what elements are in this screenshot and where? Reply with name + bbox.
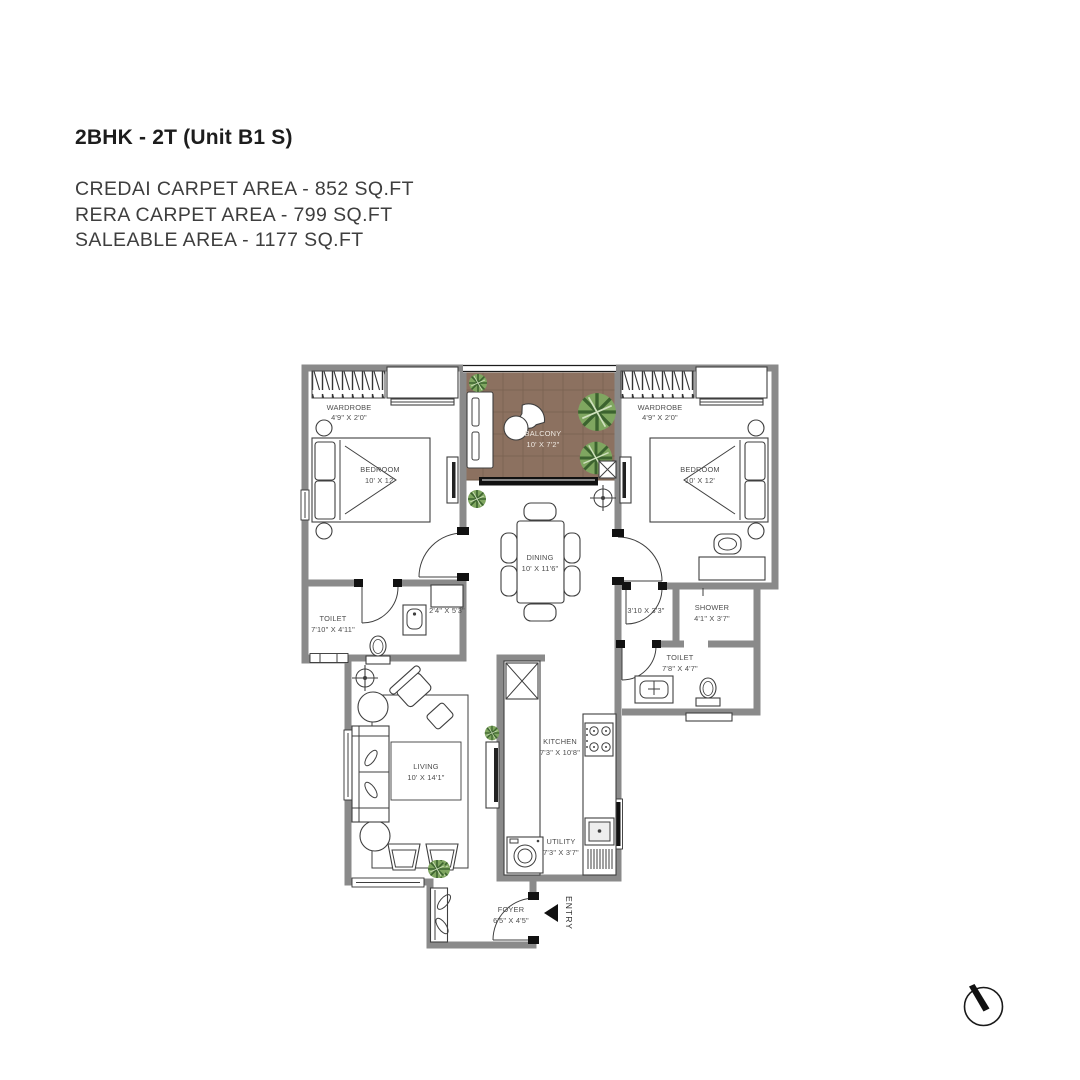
toilet-1-door (354, 579, 402, 623)
toilet-1-label: TOILET (320, 614, 347, 623)
plant-icon (578, 393, 616, 431)
bedside-table (316, 420, 332, 436)
tv-unit (486, 742, 499, 808)
hob (585, 723, 613, 756)
toilet-2-label: TOILET (667, 653, 694, 662)
toilet-2-door (616, 640, 661, 680)
balcony-bench (467, 392, 493, 468)
shaft-box (599, 461, 616, 478)
fridge (506, 663, 538, 699)
basin (635, 676, 673, 703)
plant-icon (468, 490, 486, 508)
bedroom-1-dims: 10' X 12' (365, 476, 395, 485)
passage-1-dims: 2'4" X 5'3" (429, 606, 465, 615)
bedside-table (748, 420, 764, 436)
side-table (360, 821, 390, 851)
shower-label: SHOWER (695, 603, 729, 612)
bedroom-2: WARDROBE 4'9" X 2'0" BEDROOM 10' X 12' (612, 367, 768, 585)
desk (699, 534, 765, 580)
dining-table (517, 521, 564, 603)
toilet-1-dims: 7'10" X 4'11" (311, 625, 355, 634)
toilet-2-dims: 7'8" X 4'7" (662, 664, 698, 673)
bedroom-2-dims: 10' X 12' (685, 476, 715, 485)
shower-dims: 4'1" X 3'7" (694, 614, 730, 623)
kitchen-label: KITCHEN (543, 737, 577, 746)
wardrobe-2-label: WARDROBE (638, 403, 683, 412)
living: LIVING 10' X 14'1" (352, 665, 499, 878)
bedroom-1-door (419, 527, 469, 581)
wc-icon (366, 636, 390, 664)
bedroom-2-door (612, 529, 662, 585)
compass (965, 984, 1003, 1026)
balcony-label: BALCONY (525, 429, 562, 438)
plant-icon (428, 860, 446, 878)
passage-2-dims: 3'10 X 3'3" (627, 606, 664, 615)
bedside-table (316, 523, 332, 539)
balcony-railing (463, 364, 616, 373)
wc-icon (696, 678, 720, 706)
dining-label: DINING (526, 553, 553, 562)
living-label: LIVING (413, 762, 438, 771)
ottoman (426, 702, 454, 730)
wardrobe-2-dims: 4'9" X 2'0" (642, 413, 678, 422)
entry-arrow-icon (544, 904, 558, 922)
bedroom-1-label: BEDROOM (360, 465, 400, 474)
page: 2BHK - 2T (Unit B1 S) CREDAI CARPET AREA… (0, 0, 1080, 1080)
dining: DINING 10' X 11'6" (468, 485, 616, 621)
living-dims: 10' X 14'1" (407, 773, 444, 782)
dresser-1 (387, 367, 458, 405)
bedroom-2-label: BEDROOM (680, 465, 720, 474)
entry-label: ENTRY (564, 896, 574, 930)
bedside-table (748, 523, 764, 539)
washing-machine (507, 837, 543, 873)
plant-icon (485, 726, 499, 740)
towel-rail (686, 713, 732, 721)
tv-panel-2 (620, 457, 631, 503)
utility-label: UTILITY (547, 837, 576, 846)
bedroom-1: WARDROBE 4'9" X 2'0" BEDROOM 10' X 12' (312, 367, 469, 581)
side-table (358, 692, 388, 722)
fan-icon (590, 485, 616, 511)
wardrobe-1-label: WARDROBE (327, 403, 372, 412)
foyer-dims: 6'5" X 4'5" (493, 916, 529, 925)
floor-plan: WARDROBE 4'9" X 2'0" BEDROOM 10' X 12' (0, 0, 1080, 1080)
kitchen-dims: 7'3" X 10'8" (540, 748, 580, 757)
sofa (352, 726, 389, 822)
basin (403, 605, 426, 635)
utility-dims: 7'3" X 3'7" (543, 848, 579, 857)
console (431, 888, 453, 942)
kitchen: KITCHEN 7'3" X 10'8" UTILITY 7'3" X 3'7" (504, 661, 616, 875)
passage-2-door (622, 582, 667, 624)
balcony-dims: 10' X 7'2" (527, 440, 560, 449)
accent-chair (389, 665, 436, 711)
wardrobe-1 (312, 371, 385, 398)
wardrobe-2 (621, 371, 694, 398)
armchair (388, 844, 420, 870)
toilet-1: TOILET 7'10" X 4'11" 2'4" X 5'3" (311, 579, 465, 664)
wardrobe-1-dims: 4'9" X 2'0" (331, 413, 367, 422)
tv-panel-1 (447, 457, 458, 503)
plant-icon (469, 374, 487, 392)
niche-counter (431, 585, 463, 607)
dresser-2 (696, 367, 767, 405)
dining-dims: 10' X 11'6" (522, 564, 559, 573)
fan-icon (352, 665, 378, 691)
foyer-label: FOYER (498, 905, 524, 914)
sliding-door (479, 477, 598, 486)
living-label-card (391, 742, 461, 800)
